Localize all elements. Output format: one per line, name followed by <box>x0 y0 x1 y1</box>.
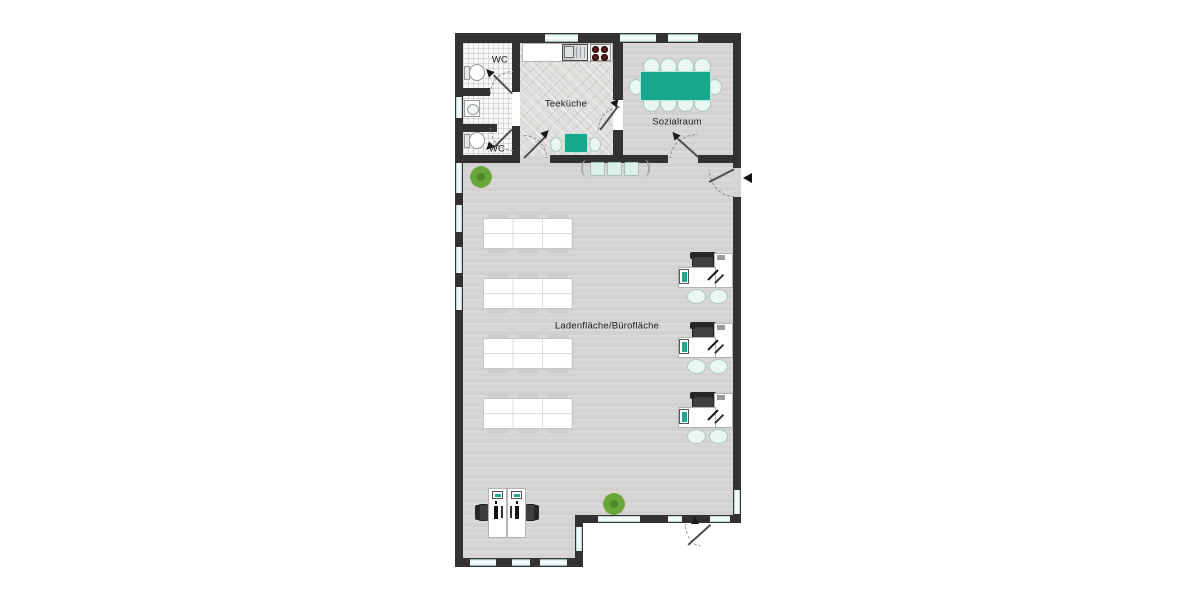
teekueche-sozial-wall-lower <box>613 130 623 163</box>
teekueche-table <box>564 133 588 153</box>
window-bottom-right-3 <box>710 516 730 522</box>
office-chair-icon <box>534 505 539 520</box>
window-left-1 <box>456 163 462 193</box>
phone-icon <box>717 395 725 400</box>
teekueche-chair <box>589 137 601 152</box>
sozialraum-bottom-wall-right <box>698 155 733 163</box>
stove-burner-icon <box>592 46 599 53</box>
window-bottom-left-1 <box>470 559 496 566</box>
window-top-1 <box>545 34 578 42</box>
visitor-chair <box>687 289 706 304</box>
top-wall <box>455 33 741 43</box>
room-label-teekueche: Teeküche <box>545 99 587 110</box>
floor-plan: WC WC Teeküche Sozialraum Ladenfläche/Bü… <box>0 0 1200 600</box>
plant-icon <box>468 164 494 190</box>
display-table <box>483 398 573 429</box>
visitor-chair <box>709 429 728 444</box>
teekueche-chair <box>550 137 562 152</box>
room-label-wc-bottom: WC <box>489 144 505 155</box>
pen-icon <box>501 506 503 518</box>
visitor-chair <box>709 359 728 374</box>
stove-burner-icon <box>601 46 608 53</box>
stove-burner-icon <box>601 54 608 61</box>
right-entrance-arrow-icon <box>743 173 752 183</box>
right-door-threshold <box>733 168 741 197</box>
pen-icon <box>510 506 512 518</box>
mouse-icon <box>495 501 497 504</box>
phone-icon <box>717 325 725 330</box>
phone-icon <box>717 255 725 260</box>
window-top-2 <box>620 34 656 42</box>
toilet-icon <box>469 132 485 149</box>
window-bottom-left-3 <box>540 559 567 566</box>
window-top-3 <box>668 34 698 42</box>
plant-icon <box>601 491 627 517</box>
kitchen-sink-drainer <box>576 47 586 58</box>
wc-divider-wall-top <box>463 88 490 96</box>
toilet-icon <box>469 64 485 81</box>
wc-right-wall-upper <box>512 43 520 92</box>
bench-seat <box>607 162 622 176</box>
display-table <box>483 338 573 369</box>
monitor-icon <box>679 269 689 284</box>
stove-burner-icon <box>592 54 599 61</box>
display-table <box>483 278 573 309</box>
visitor-chair <box>687 429 706 444</box>
window-left-3 <box>456 247 462 273</box>
sozialraum-table <box>640 71 711 101</box>
window-step <box>576 527 582 551</box>
keyboard-icon <box>494 506 498 519</box>
monitor-icon <box>511 491 522 499</box>
wc-bottom-wall <box>455 155 520 163</box>
window-bottom-right-2 <box>668 516 682 522</box>
display-table <box>483 218 573 249</box>
mouse-icon <box>516 501 518 504</box>
teekueche-sozial-wall-upper <box>613 43 623 100</box>
room-label-hauptraum: Ladenfläche/Bürofläche <box>555 321 659 332</box>
window-left-wc <box>456 97 462 118</box>
keyboard-icon <box>515 506 519 519</box>
window-left-4 <box>456 287 462 310</box>
right-wall-lower <box>733 197 741 515</box>
monitor-icon <box>492 491 503 499</box>
window-right-bottom <box>734 490 740 514</box>
bench-seat <box>590 162 605 176</box>
right-wall-upper <box>733 33 741 168</box>
window-bottom-left-2 <box>512 559 530 566</box>
room-label-sozialraum: Sozialraum <box>652 117 702 128</box>
bench-armrest <box>581 160 590 177</box>
kitchen-sink-basin <box>564 46 574 58</box>
window-left-2 <box>456 205 462 232</box>
room-label-wc-top: WC <box>492 55 508 66</box>
monitor-icon <box>679 409 689 424</box>
bench-seat <box>624 162 639 176</box>
monitor-icon <box>679 339 689 354</box>
visitor-chair <box>709 289 728 304</box>
washbasin-bowl-icon <box>467 104 479 115</box>
office-chair-icon <box>475 505 480 520</box>
visitor-chair <box>687 359 706 374</box>
bottom-entrance-arrow-icon <box>691 516 699 524</box>
